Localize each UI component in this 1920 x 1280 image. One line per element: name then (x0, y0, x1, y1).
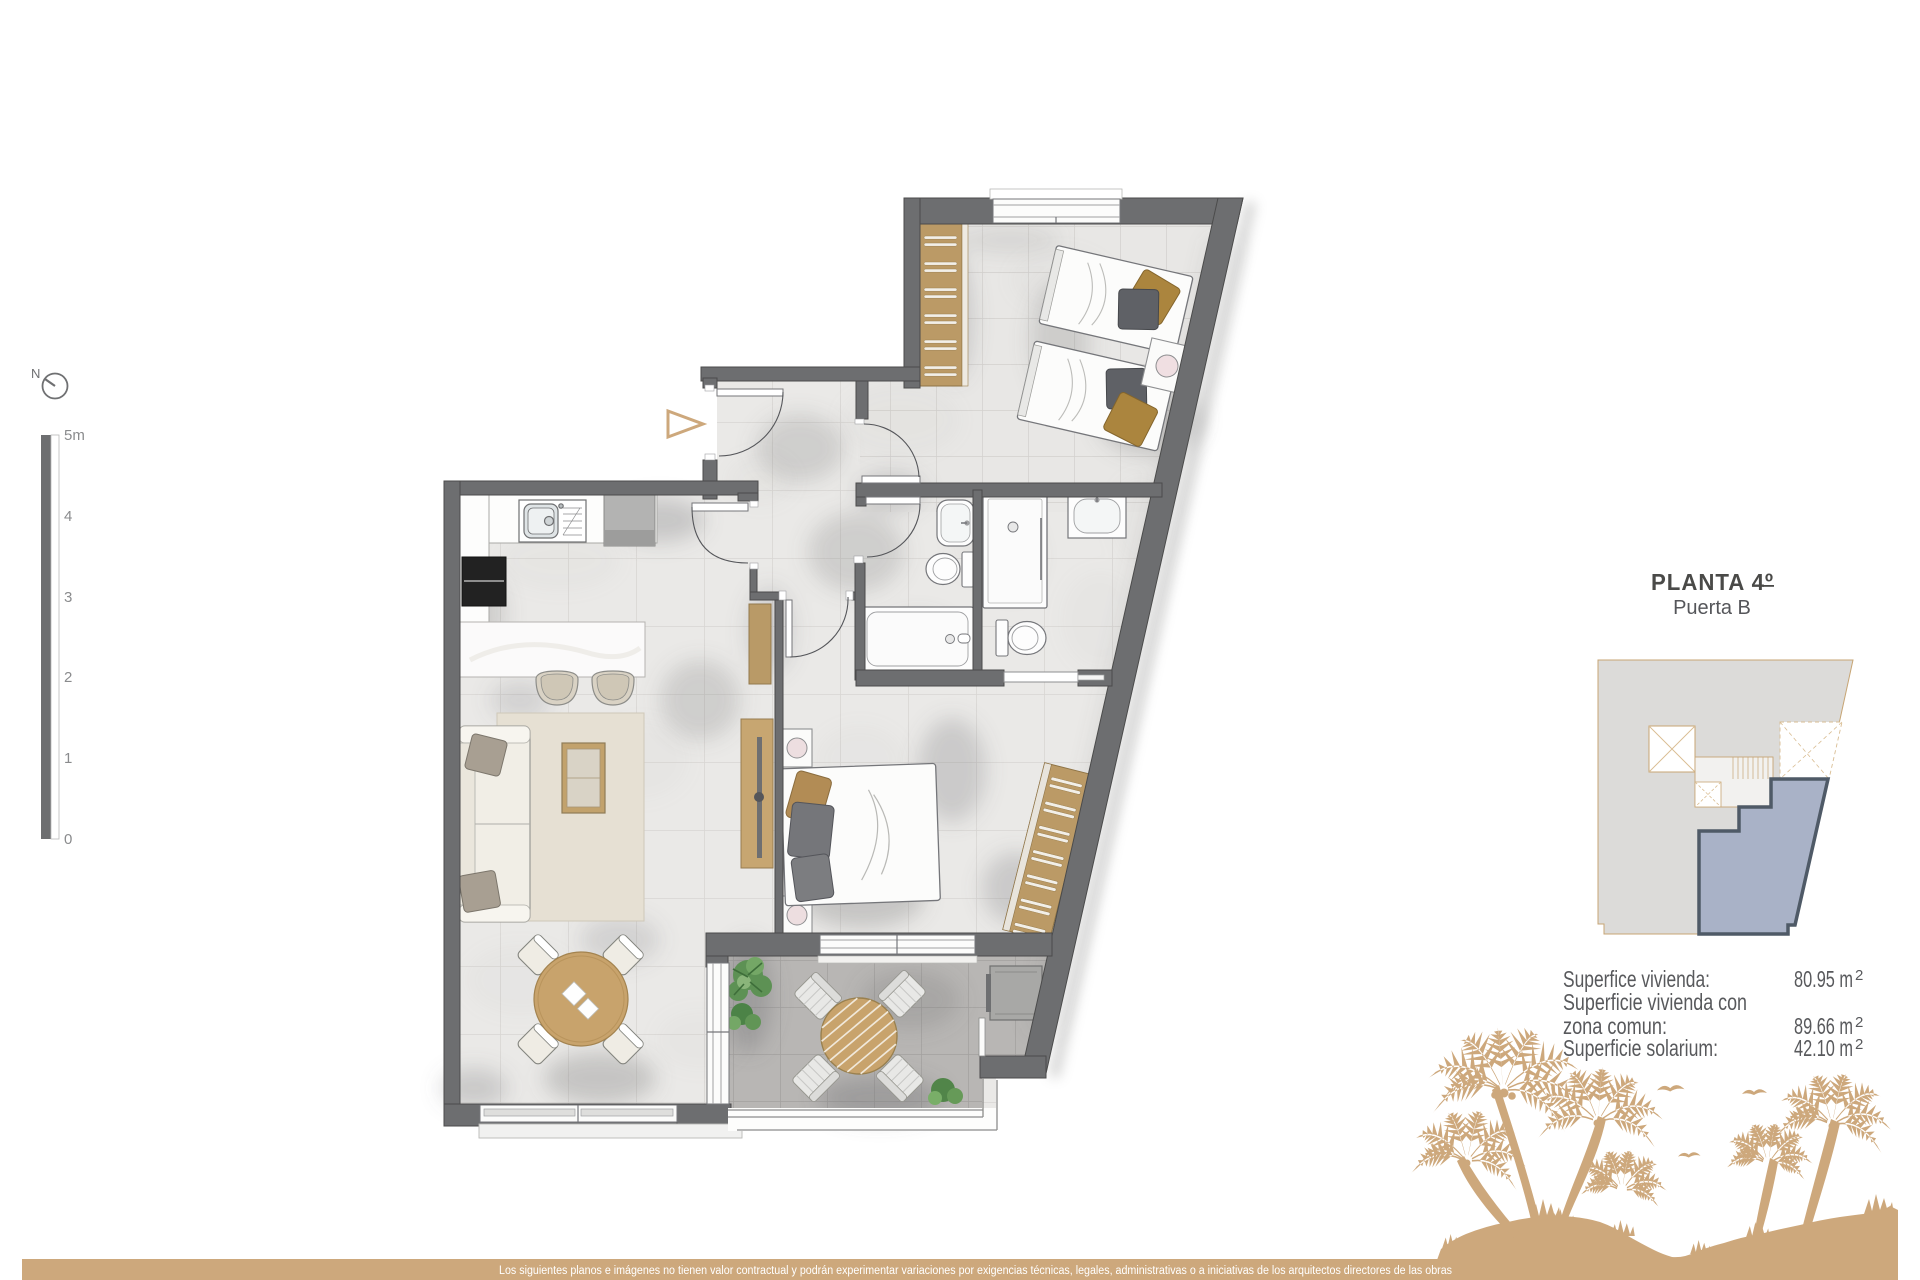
svg-text:3: 3 (64, 589, 72, 606)
svg-text:0: 0 (64, 831, 72, 848)
svg-text:Puerta B: Puerta B (1673, 597, 1751, 619)
svg-text:2: 2 (1855, 967, 1863, 984)
svg-text:42.10 m: 42.10 m (1794, 1035, 1853, 1061)
svg-text:2: 2 (1855, 1036, 1863, 1053)
svg-text:1: 1 (64, 750, 72, 767)
svg-text:PLANTA 4º: PLANTA 4º (1651, 569, 1774, 595)
svg-text:Los siguientes planos e imágen: Los siguientes planos e imágenes no tien… (499, 1265, 1452, 1277)
svg-text:5m: 5m (64, 427, 85, 444)
svg-text:N: N (31, 366, 40, 381)
svg-text:Superficie vivienda con: Superficie vivienda con (1563, 989, 1747, 1015)
svg-text:Superficie solarium:: Superficie solarium: (1563, 1035, 1718, 1061)
svg-text:80.95 m: 80.95 m (1794, 966, 1853, 992)
svg-text:2: 2 (64, 669, 72, 686)
svg-text:4: 4 (64, 508, 72, 525)
svg-text:2: 2 (1855, 1014, 1863, 1031)
